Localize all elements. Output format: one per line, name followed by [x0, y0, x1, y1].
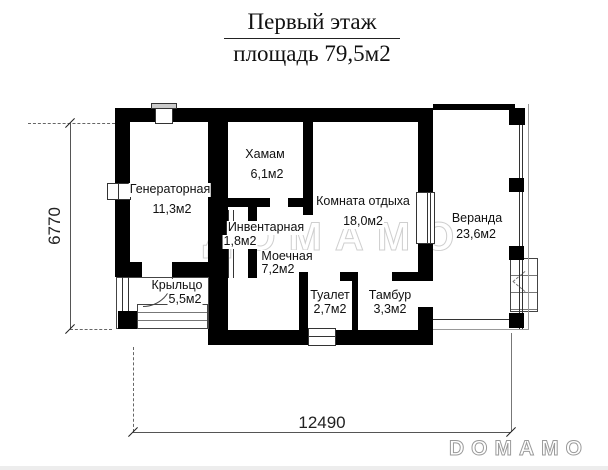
room-label-wash-area: 7,2м2: [261, 263, 296, 277]
wall-right-middle: [418, 243, 433, 281]
extension-line: [133, 347, 134, 432]
dimension-label-horizontal: 12490: [298, 413, 345, 433]
extension-line: [28, 123, 115, 124]
extension-line: [511, 333, 512, 432]
veranda-post-4: [509, 313, 524, 328]
room-label-inventory-area: 1,8м2: [223, 235, 258, 249]
veranda-outer-bottom: [433, 329, 529, 330]
veranda-rail-line-2: [522, 110, 523, 330]
plan-title-line1: Первый этаж: [224, 9, 400, 39]
room-label-veranda-name: Веранда: [451, 212, 503, 226]
bottom-strip: [0, 466, 608, 470]
wall-bottom-left: [208, 330, 308, 345]
plan-title-line2: площадь 79,5м2: [224, 39, 400, 67]
veranda-post-1: [509, 108, 525, 125]
veranda-stairs-icon: [510, 258, 538, 312]
window-bottom-icon: [308, 328, 336, 346]
window-right-mullion-1: [427, 193, 428, 243]
extension-line: [70, 329, 112, 330]
room-label-hamam-area: 6,1м2: [250, 168, 285, 182]
room-label-rest-name: Комната отдыха: [315, 195, 411, 209]
room-label-generator-area: 11,3м2: [152, 203, 193, 217]
room-label-rest-area: 18,0м2: [342, 215, 384, 229]
window-left-mullion: [118, 184, 119, 199]
wall-left-upper: [115, 108, 130, 183]
porch-stairs-icon: [137, 304, 208, 329]
wall-right-upper: [418, 108, 433, 193]
wall-porch-top-right: [172, 262, 210, 277]
wall-toilet-top: [340, 272, 358, 281]
wall-toilet-left: [299, 272, 308, 330]
wall-tambour-top: [392, 272, 418, 281]
veranda-bottom-line: [433, 319, 510, 320]
room-label-inventory-name: Инвентарная: [227, 221, 305, 235]
veranda-outer-edge: [528, 104, 529, 330]
room-label-hamam-name: Хамам: [244, 148, 285, 162]
vent-body-icon: [155, 108, 173, 124]
porch-railing: [122, 277, 129, 312]
wall-porch-top-left: [115, 262, 142, 277]
wall-right-lower: [418, 307, 433, 345]
wall-toilet-tambour: [352, 281, 358, 330]
window-right-mullion-2: [430, 193, 431, 243]
wall-hamam-bottom: [228, 198, 270, 207]
room-label-veranda-area: 23,6м2: [455, 228, 497, 242]
floor-plan: Первый этаж площадь 79,5м2 ДОМАМО: [0, 0, 608, 470]
room-label-porch-area: 5,5м2: [168, 293, 203, 307]
room-label-toilet-area: 2,7м2: [313, 303, 348, 317]
window-right-icon: [416, 192, 435, 244]
room-label-toilet-name: Туалет: [309, 289, 351, 303]
porch-post: [118, 311, 137, 329]
window-bottom-mullion: [309, 336, 335, 337]
veranda-top-wall: [433, 104, 515, 110]
room-label-generator-name: Генераторная: [129, 183, 211, 197]
veranda-rail-line-1: [519, 110, 520, 330]
dimension-label-vertical: 6770: [45, 207, 65, 245]
room-label-tambour-area: 3,3м2: [373, 303, 408, 317]
veranda-post-2: [509, 178, 524, 192]
domamo-logo: DOMAMO: [449, 437, 589, 461]
dimension-line-vertical: [70, 123, 71, 329]
room-label-tambour-name: Тамбур: [368, 289, 412, 303]
wall-hamam-right: [303, 122, 313, 215]
veranda-post-3: [509, 246, 524, 260]
room-label-porch-name: Крыльцо: [151, 279, 204, 293]
plan-title: Первый этаж площадь 79,5м2: [224, 9, 400, 67]
window-left-icon: [107, 183, 131, 200]
